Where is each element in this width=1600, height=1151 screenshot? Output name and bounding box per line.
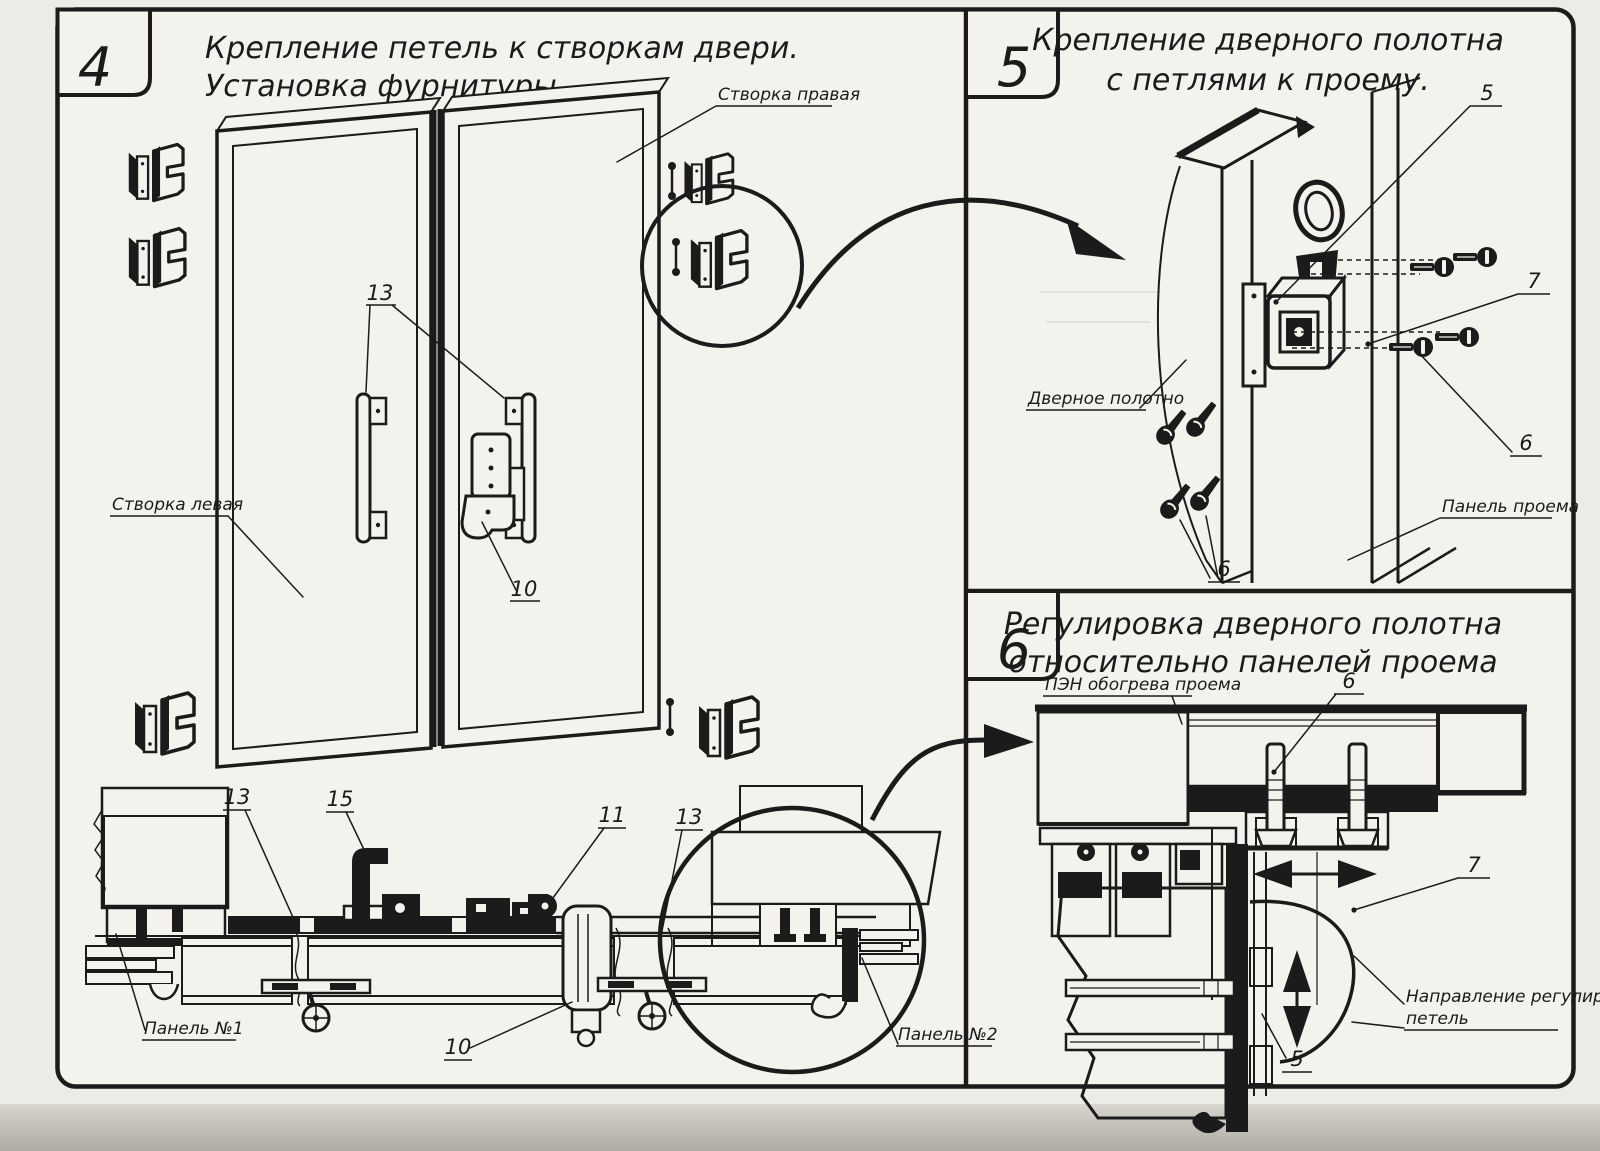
callout-hinge: 5 <box>1480 81 1493 105</box>
panel5-title-line1: Крепление дверного полотна <box>1032 23 1504 58</box>
panel5-number: 5 <box>997 36 1031 99</box>
callout-bolt: 6 <box>1342 669 1355 693</box>
callout-hinge-bottom: 5 <box>1290 1047 1303 1071</box>
callout-adjust-screw: 7 <box>1527 269 1541 293</box>
brick-wall-left <box>102 788 228 908</box>
label-door-leaf: Дверное полотно <box>1027 389 1184 409</box>
callout-section-lock: 10 <box>445 1035 472 1059</box>
scanner-edge-band <box>0 1104 1600 1151</box>
label-direction-line1: Направление регулировки <box>1406 987 1600 1007</box>
drawing-canvas: 4 Крепление петель к створкам двери. Уст… <box>0 0 1600 1151</box>
panel4-title-line1: Крепление петель к створкам двери. <box>205 31 799 66</box>
callout-section-handle: 15 <box>327 787 354 811</box>
lock-housing <box>563 906 611 1010</box>
callout-fix-screw: 6 <box>1519 431 1532 455</box>
callout-hinge-side: 7 <box>1467 853 1481 877</box>
label-leaf-right: Створка правая <box>718 85 860 105</box>
door-leaf-right <box>443 92 659 747</box>
label-opening-panel: Панель проема <box>1442 497 1579 517</box>
callout-section-joint: 13 <box>676 805 703 829</box>
door-leaf-left <box>217 112 431 767</box>
label-heater: ПЭН обогрева проема <box>1045 675 1241 695</box>
label-panel1: Панель №1 <box>144 1019 244 1039</box>
panel4-number: 4 <box>78 36 112 99</box>
label-leaf-left: Створка левая <box>112 495 243 515</box>
callout-handles: 13 <box>367 281 394 305</box>
callout-anchor-bolts: 6 <box>1217 557 1230 581</box>
panel6-title-line1: Регулировка дверного полотна <box>1004 607 1502 642</box>
callout-section-frame: 13 <box>224 785 251 809</box>
callout-section-roller: 11 <box>599 803 626 827</box>
label-panel2: Панель №2 <box>898 1025 998 1045</box>
door-leaves-drawing <box>217 78 668 767</box>
panel5-title-line2: с петлями к проему. <box>1106 63 1430 98</box>
callout-latch: 10 <box>511 577 538 601</box>
assembly-drawing-sheet: 4 Крепление петель к створкам двери. Уст… <box>0 0 1600 1151</box>
label-direction-line2: петель <box>1406 1009 1469 1029</box>
